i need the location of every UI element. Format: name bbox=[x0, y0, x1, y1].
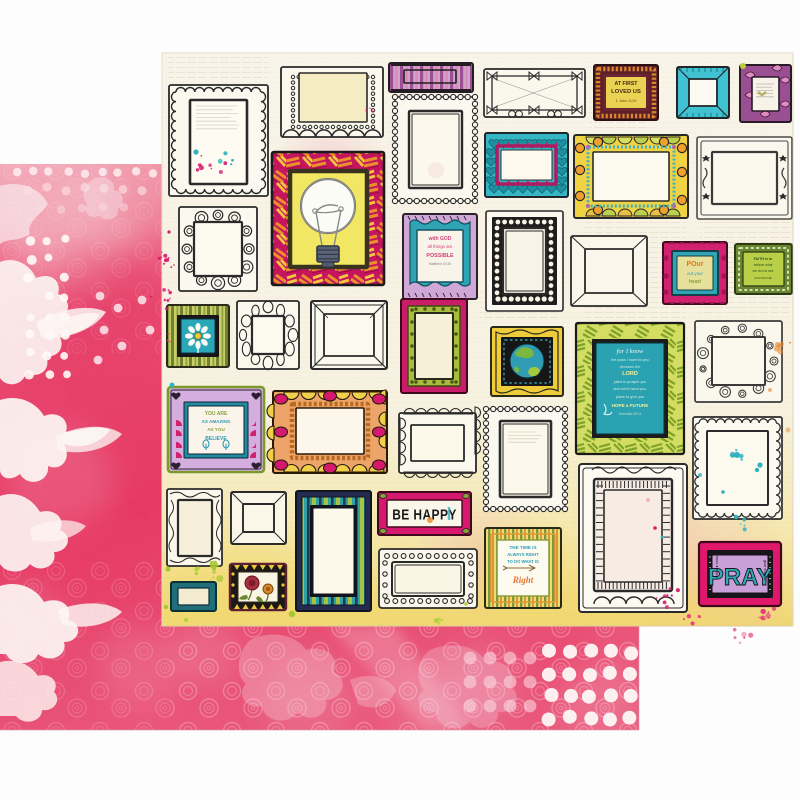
svg-text:all things are: all things are bbox=[428, 244, 453, 249]
svg-text:Right: Right bbox=[512, 575, 534, 585]
svg-text:FAITH is to: FAITH is to bbox=[754, 257, 774, 261]
svg-text:the plans I have for you: the plans I have for you bbox=[611, 358, 648, 362]
svg-text:LORD: LORD bbox=[622, 371, 638, 377]
svg-text:AS AMAZING: AS AMAZING bbox=[202, 419, 231, 424]
svg-text:YOU ARE: YOU ARE bbox=[205, 411, 228, 417]
svg-text:believe what: believe what bbox=[754, 263, 773, 267]
svg-text:give thanks: give thanks bbox=[763, 560, 768, 580]
svg-text:1 John 4:19: 1 John 4:19 bbox=[616, 98, 638, 103]
svg-text:AS YOU: AS YOU bbox=[207, 427, 225, 432]
svg-text:Jeremiah 29:11: Jeremiah 29:11 bbox=[618, 412, 641, 416]
svg-text:for I know: for I know bbox=[617, 348, 644, 355]
svg-text:out your: out your bbox=[687, 271, 703, 276]
svg-text:POur: POur bbox=[686, 261, 703, 268]
svg-text:with GOD: with GOD bbox=[428, 236, 452, 242]
svg-text:POSSIBLE: POSSIBLE bbox=[426, 253, 454, 259]
svg-text:LOVED US: LOVED US bbox=[611, 89, 641, 95]
svg-text:HOPE a FUTURE: HOPE a FUTURE bbox=[612, 403, 649, 408]
svg-text:TO DO WHAT IS: TO DO WHAT IS bbox=[507, 559, 539, 564]
svg-text:AUGUSTINE: AUGUSTINE bbox=[754, 276, 772, 280]
svg-text:and not to harm you,: and not to harm you, bbox=[614, 387, 647, 391]
svg-text:heart: heart bbox=[689, 279, 702, 285]
svg-text:ALWAYS RIGHT: ALWAYS RIGHT bbox=[507, 552, 539, 557]
svg-text:without ceasing: without ceasing bbox=[714, 550, 719, 578]
svg-text:declares the: declares the bbox=[620, 365, 641, 369]
svg-text:plans to prosper you: plans to prosper you bbox=[614, 380, 647, 384]
svg-text:BE HAPPY: BE HAPPY bbox=[392, 506, 457, 523]
svg-text:THE TIME IS: THE TIME IS bbox=[509, 545, 536, 550]
svg-text:we do not see: we do not see bbox=[752, 269, 773, 273]
svg-text:AT FIRST: AT FIRST bbox=[615, 81, 639, 87]
svg-text:plans to give you: plans to give you bbox=[616, 395, 645, 399]
svg-text:Matthew 19:26: Matthew 19:26 bbox=[429, 262, 451, 266]
